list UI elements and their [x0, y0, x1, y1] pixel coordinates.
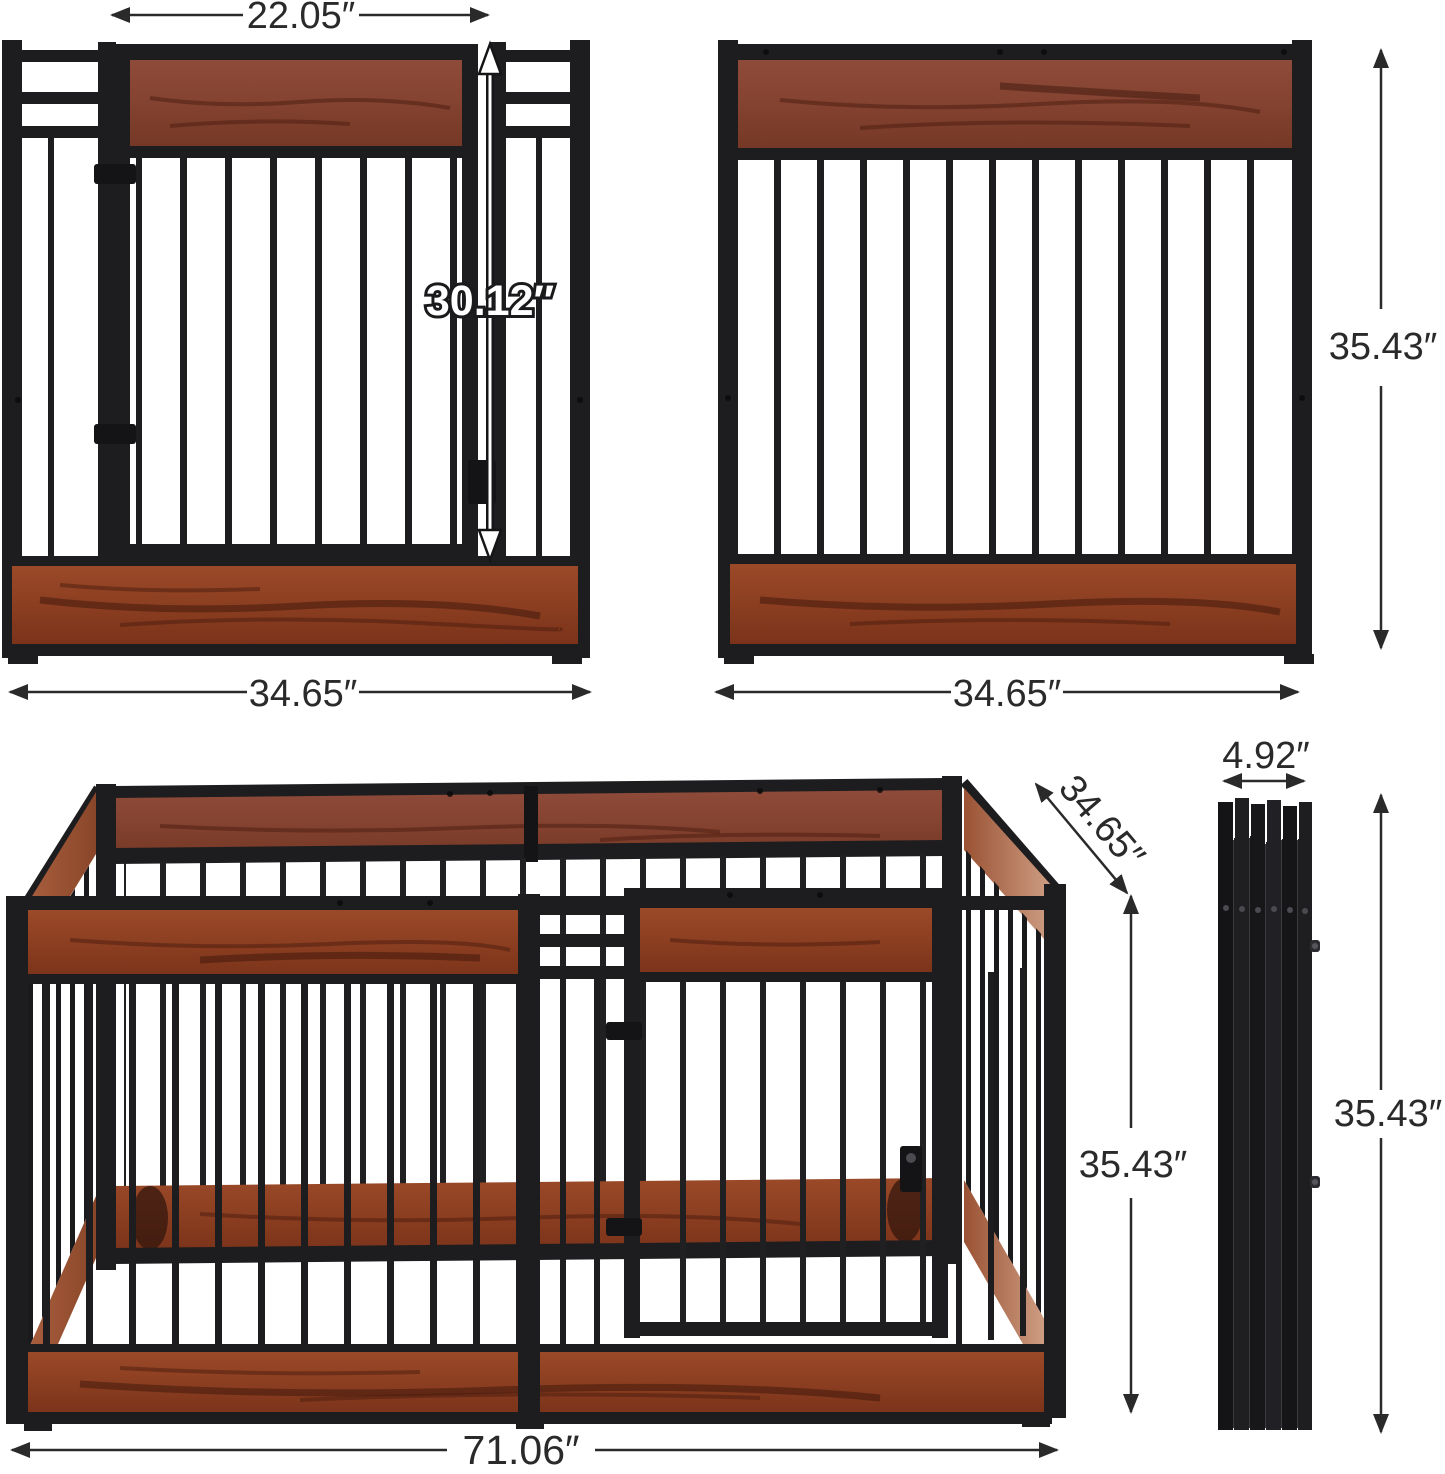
- front-center-post: [518, 894, 540, 1422]
- front-wall: [6, 884, 1066, 1431]
- dim-right-panel-width: 34.65″: [716, 673, 1298, 715]
- dim-assembled-length: 71.06″: [12, 1427, 1057, 1473]
- door-bars: [136, 158, 458, 544]
- dim-assembled-height: 35.43″: [1079, 896, 1188, 1412]
- dim-assembled-depth: 34.65″: [1036, 767, 1153, 893]
- panel-with-door-view: [2, 40, 590, 664]
- dim-panel-height-label: 35.43″: [1329, 326, 1438, 368]
- front-door: [606, 888, 948, 1338]
- assembled-playpen-view: [6, 776, 1066, 1431]
- door-hinge-top: [606, 1022, 642, 1040]
- right-side-wall: [964, 782, 1058, 1384]
- left-side-section: [20, 50, 100, 560]
- bottom-wood-plank: [724, 554, 1314, 664]
- dim-door-width: 22.05″: [112, 0, 488, 37]
- dim-panel-height: 35.43″: [1329, 50, 1438, 648]
- door-hinge-bottom: [606, 1218, 642, 1236]
- front-right-post: [1044, 884, 1066, 1418]
- hinge-post: [98, 42, 116, 560]
- panel-bars: [750, 160, 1286, 554]
- dim-folded-thickness-label: 4.92″: [1222, 735, 1309, 777]
- door-latch: [900, 1146, 922, 1192]
- back-center-seam: [524, 786, 538, 862]
- dim-door-width-label: 22.05″: [247, 0, 356, 37]
- plain-panel-view: [718, 40, 1314, 664]
- dim-assembled-height-label: 35.43″: [1079, 1144, 1188, 1186]
- front-left-post: [6, 896, 28, 1424]
- product-dimension-diagram: 22.05″ 30.12″ 34.65″: [0, 0, 1445, 1474]
- dim-right-panel-width-label: 34.65″: [953, 673, 1062, 715]
- dim-door-height-label: 30.12″: [426, 277, 554, 325]
- bottom-wood-plank: [8, 556, 582, 664]
- door-hinge-bottom: [94, 424, 136, 444]
- front-door-bars: [648, 982, 932, 1322]
- diagram-canvas: 22.05″ 30.12″ 34.65″: [0, 0, 1445, 1474]
- dim-folded-height-label: 35.43″: [1334, 1093, 1443, 1135]
- dim-left-panel-width-label: 34.65″: [249, 673, 358, 715]
- door-hinge-top: [94, 164, 136, 184]
- dim-folded-height: 35.43″: [1334, 795, 1443, 1432]
- front-left-bars: [40, 982, 518, 1354]
- dim-left-panel-width: 34.65″: [10, 673, 590, 715]
- dim-assembled-length-label: 71.06″: [462, 1427, 579, 1473]
- dim-folded-thickness: 4.92″: [1222, 735, 1309, 781]
- folded-panels-view: [1218, 798, 1320, 1430]
